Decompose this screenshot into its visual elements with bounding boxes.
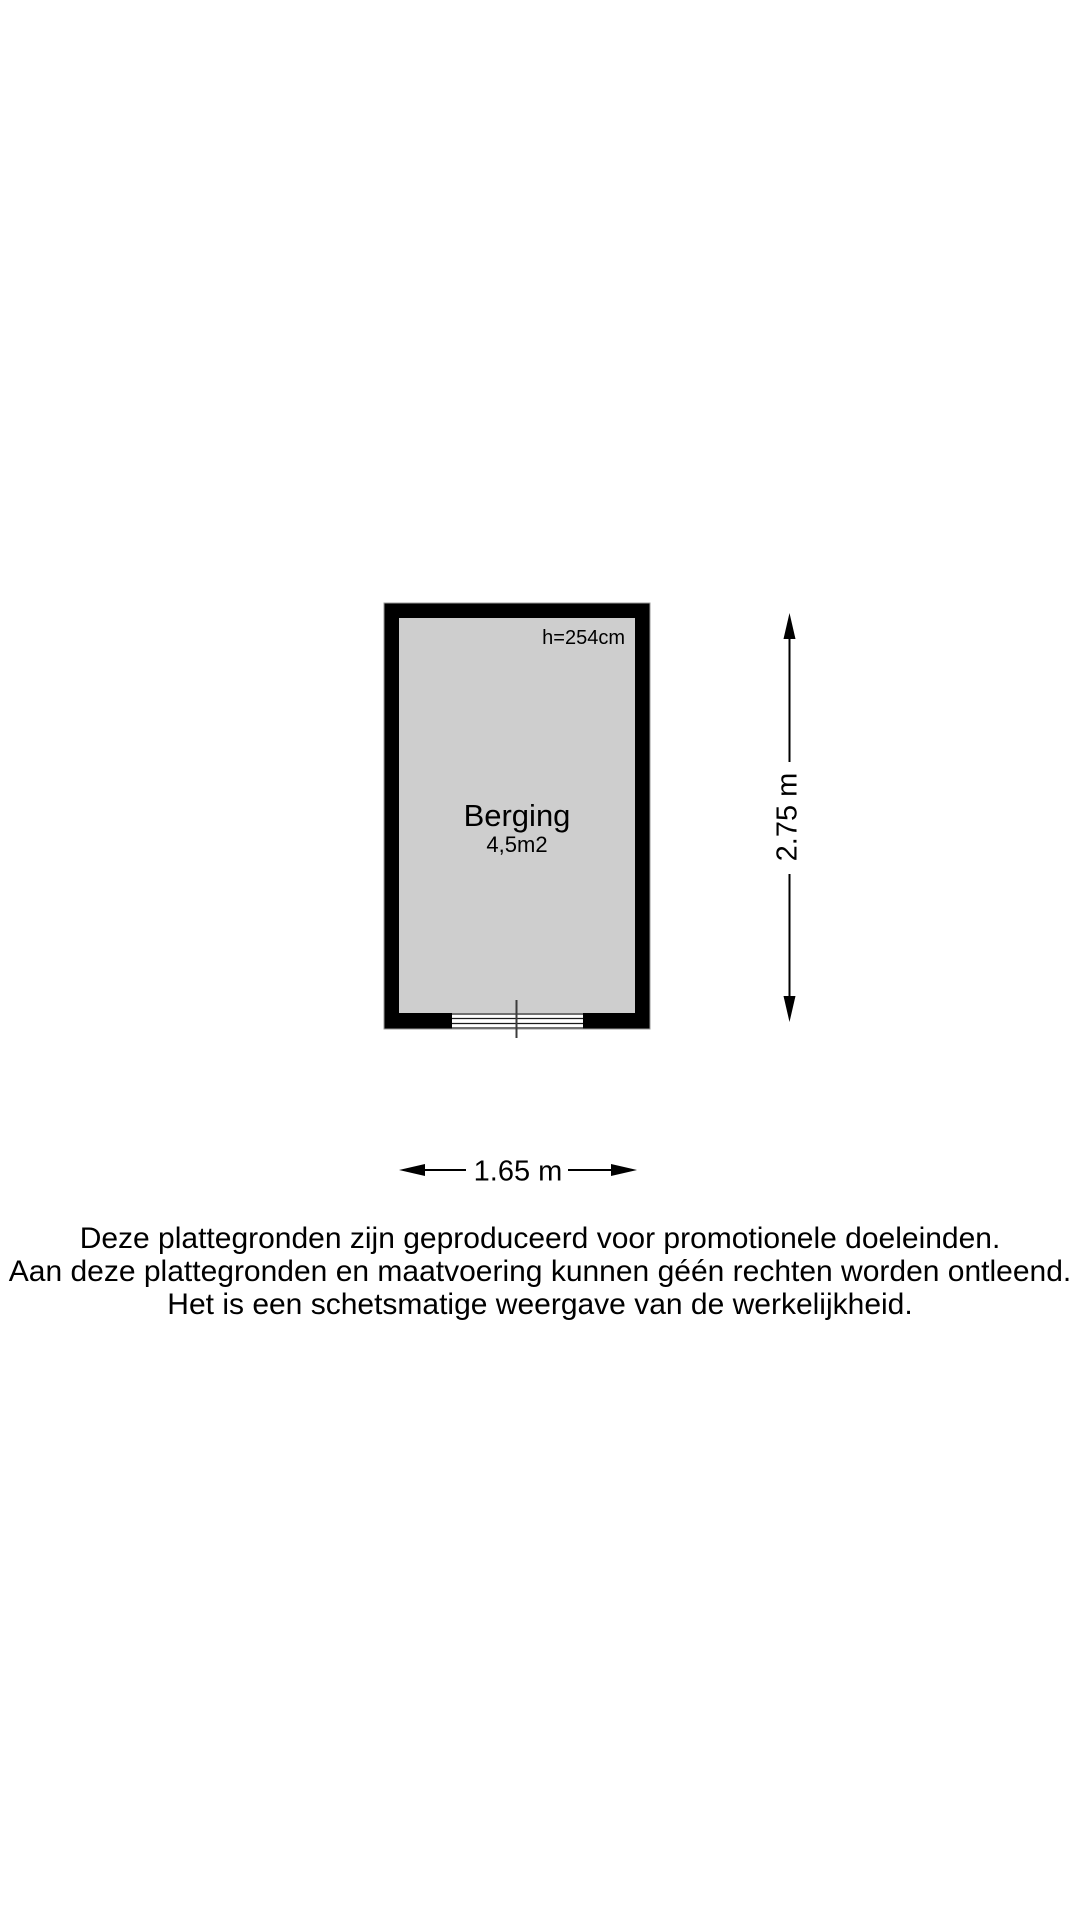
- disclaimer-line: Deze plattegronden zijn geproduceerd voo…: [0, 1222, 1080, 1255]
- room-area-label: 4,5m2: [486, 832, 547, 858]
- floorplan-graphic: [0, 0, 1080, 1920]
- disclaimer-line: Aan deze plattegronden en maatvoering ku…: [0, 1255, 1080, 1288]
- floorplan-page: h=254cm Berging 4,5m2 2.75 m 1.65 m Deze…: [0, 0, 1080, 1920]
- ceiling-height-label: h=254cm: [542, 627, 625, 650]
- disclaimer-text: Deze plattegronden zijn geproduceerd voo…: [0, 1222, 1080, 1321]
- height-dimension-label: 2.75 m: [772, 773, 805, 862]
- room-name-label: Berging: [464, 798, 571, 834]
- width-dimension-label: 1.65 m: [474, 1156, 563, 1189]
- disclaimer-line: Het is een schetsmatige weergave van de …: [0, 1288, 1080, 1321]
